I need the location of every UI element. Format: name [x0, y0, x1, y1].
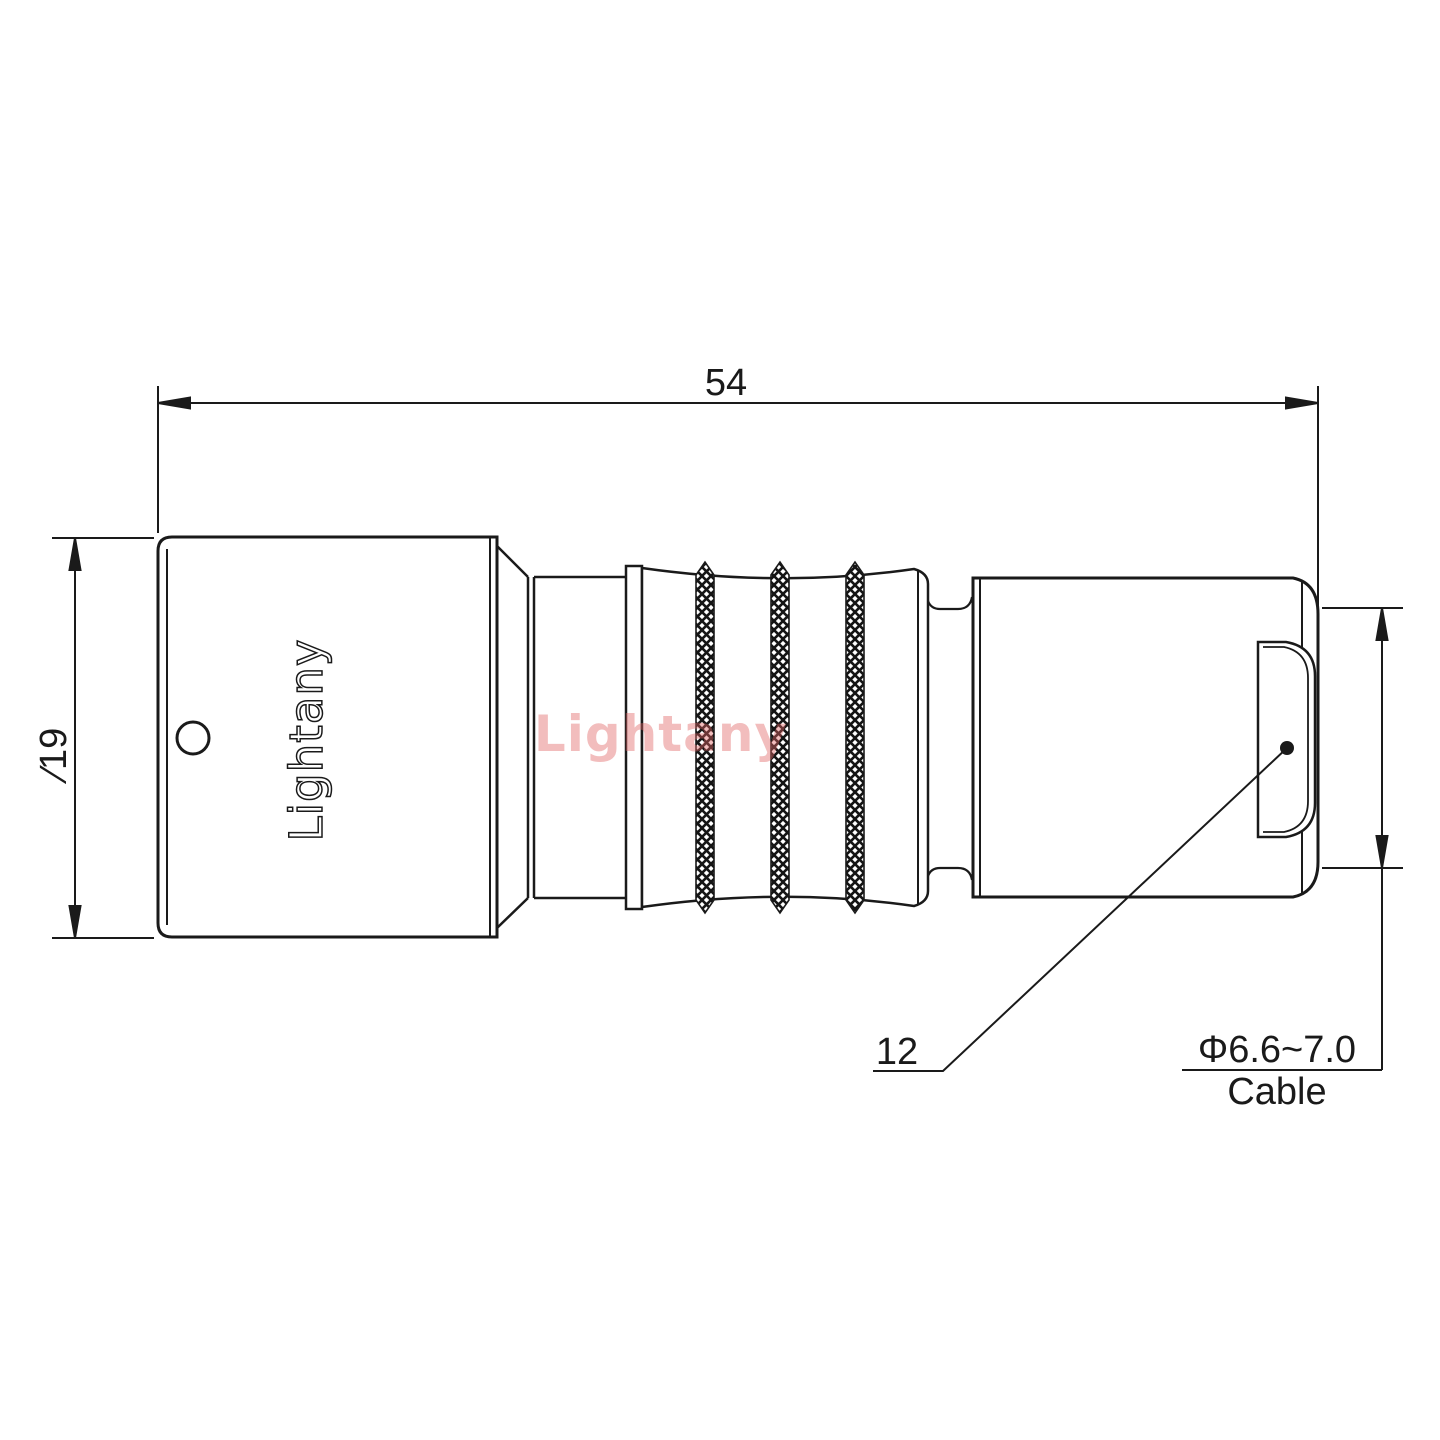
arrowhead-down	[70, 906, 81, 938]
dim-label-boot-reference: 12	[876, 1031, 918, 1073]
body-logo-text: Lightany	[280, 638, 333, 841]
groove	[928, 597, 972, 880]
connector-technical-drawing: Lightany	[0, 0, 1440, 1440]
arrowhead-left	[158, 398, 190, 409]
arrowhead-up	[70, 538, 81, 570]
arrowhead-up	[1377, 608, 1388, 640]
dim-label-overall-length: 54	[705, 362, 747, 404]
watermark-text: Lightany	[534, 705, 788, 763]
cable-entry-recess	[1258, 642, 1315, 837]
knurl-band	[846, 562, 864, 913]
dim-label-body-diameter: ∕19	[33, 728, 75, 785]
dim-label-cable: Cable	[1227, 1071, 1326, 1113]
arrowhead-down	[1377, 836, 1388, 868]
arrowhead-right	[1286, 398, 1318, 409]
leader-dot	[1280, 741, 1294, 755]
shell-hole	[177, 722, 209, 754]
drawing-canvas: Lightany	[0, 0, 1440, 1440]
dim-label-cable-diameter: Φ6.6~7.0	[1198, 1029, 1356, 1071]
cable-boot	[973, 578, 1318, 897]
